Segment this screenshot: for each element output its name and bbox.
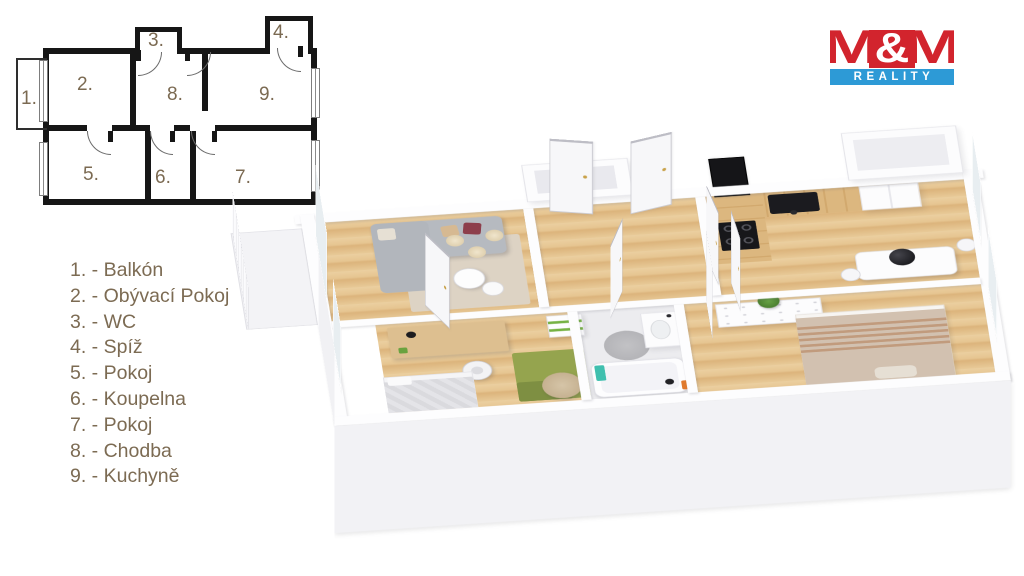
mm-reality-logo: M M & REALITY bbox=[830, 24, 954, 85]
door-leaf-pantry bbox=[298, 46, 303, 57]
room-label-1: 1. bbox=[21, 88, 37, 110]
bathtub-inner bbox=[598, 362, 680, 394]
legend-item-4: 4. - Spíž bbox=[70, 335, 229, 361]
room-label-7: 7. bbox=[235, 167, 251, 189]
floor-plan-2d: 1. 2. 3. 4. 5. 6. 7. 8. 9. bbox=[15, 12, 333, 217]
apartment-3d bbox=[300, 169, 1011, 426]
wall-living-hall bbox=[130, 54, 136, 125]
real-estate-floorplan-page: 1. 2. 3. 4. 5. 6. 7. 8. 9. 1. - Balkón 2… bbox=[0, 0, 1024, 576]
door-leaf-room6 bbox=[170, 131, 175, 142]
logo-m-right: M bbox=[903, 24, 954, 68]
room-label-8: 8. bbox=[167, 84, 183, 106]
logo-reality-bar: REALITY bbox=[830, 69, 954, 85]
window-living bbox=[39, 60, 48, 122]
window-room5 bbox=[39, 142, 48, 196]
door-leaf-entrance bbox=[185, 50, 190, 61]
legend-item-1: 1. - Balkón bbox=[70, 258, 229, 284]
logo-ampersand: & bbox=[875, 26, 910, 68]
room-label-3: 3. bbox=[148, 30, 164, 52]
pillow-cream bbox=[377, 228, 397, 241]
legend-item-3: 3. - WC bbox=[70, 310, 229, 336]
room-label-9: 9. bbox=[259, 84, 275, 106]
door-wc bbox=[549, 139, 593, 215]
room-label-4: 4. bbox=[273, 22, 289, 44]
door-entrance bbox=[630, 132, 671, 214]
wall-room5-bath bbox=[145, 131, 151, 199]
room-label-5: 5. bbox=[83, 164, 99, 186]
bed-room5-pillow bbox=[387, 376, 412, 386]
logo-mm: M M & bbox=[830, 24, 954, 68]
legend-item-2: 2. - Obývací Pokoj bbox=[70, 284, 229, 310]
legend-item-8: 8. - Chodba bbox=[70, 439, 229, 465]
room-label-2: 2. bbox=[77, 74, 93, 96]
door-leaf-room5 bbox=[108, 131, 113, 142]
legend-item-5: 5. - Pokoj bbox=[70, 361, 229, 387]
door-leaf-room7 bbox=[212, 131, 217, 142]
legend: 1. - Balkón 2. - Obývací Pokoj 3. - WC 4… bbox=[70, 258, 229, 490]
legend-item-6: 6. - Koupelna bbox=[70, 387, 229, 413]
room-label-6: 6. bbox=[155, 167, 171, 189]
legend-item-7: 7. - Pokoj bbox=[70, 413, 229, 439]
window-kitchen bbox=[311, 68, 320, 118]
pantry-interior bbox=[853, 134, 950, 171]
desk-plant bbox=[398, 347, 408, 353]
legend-item-9: 9. - Kuchyně bbox=[70, 464, 229, 490]
door-leaf-wc bbox=[136, 50, 141, 61]
